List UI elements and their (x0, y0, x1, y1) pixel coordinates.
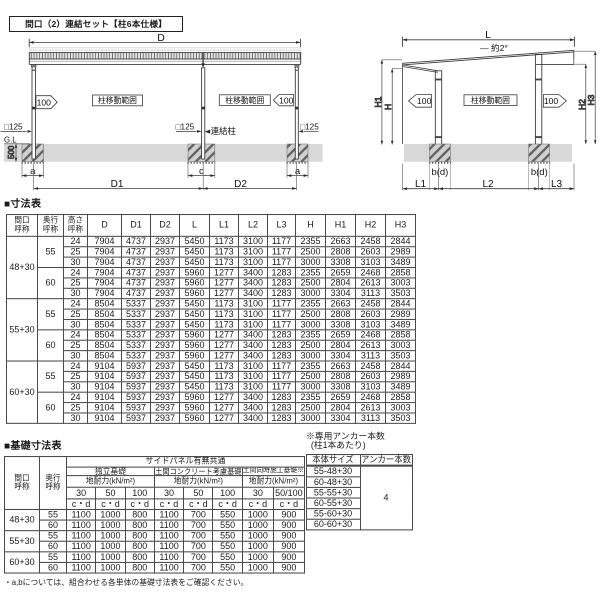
svg-text:柱移動範囲: 柱移動範囲 (98, 95, 137, 105)
svg-text:D: D (157, 32, 165, 44)
svg-text:L2: L2 (482, 179, 494, 190)
svg-text:— 約2°: — 約2° (480, 42, 508, 53)
svg-text:b(d): b(d) (531, 167, 548, 178)
svg-text:100: 100 (279, 95, 294, 105)
svg-text:H: H (383, 104, 393, 110)
svg-text:500: 500 (7, 145, 16, 159)
svg-text:100: 100 (544, 96, 559, 106)
svg-text:L3: L3 (551, 179, 563, 190)
svg-text:H3: H3 (586, 94, 596, 105)
svg-text:H1: H1 (373, 96, 383, 107)
svg-text:柱移動範囲: 柱移動範囲 (225, 95, 264, 105)
svg-text:L1: L1 (415, 179, 427, 190)
svg-text:□125: □125 (300, 123, 319, 132)
svg-text:100: 100 (37, 97, 52, 107)
svg-text:連結柱: 連結柱 (211, 126, 237, 136)
svg-text:D1: D1 (111, 179, 124, 190)
svg-text:D2: D2 (234, 179, 247, 190)
svg-text:a: a (295, 166, 301, 177)
svg-text:b(d): b(d) (431, 167, 448, 178)
svg-text:□125: □125 (176, 123, 195, 132)
svg-text:柱移動範囲: 柱移動範囲 (471, 95, 510, 105)
svg-text:a: a (30, 166, 36, 177)
svg-text:□125: □125 (4, 123, 23, 132)
svg-text:G.L: G.L (4, 135, 17, 144)
svg-text:100: 100 (417, 96, 432, 106)
svg-text:L: L (485, 29, 491, 41)
